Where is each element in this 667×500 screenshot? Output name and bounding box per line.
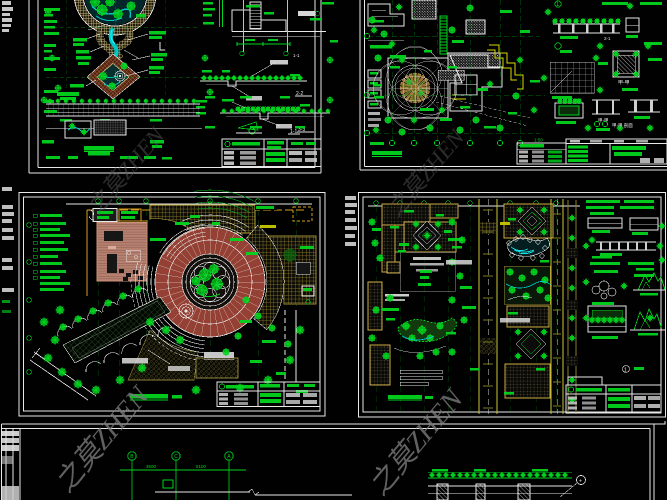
svg-text:甲-甲 剖面: 甲-甲 剖面 (612, 122, 633, 129)
svg-text:C: C (174, 454, 178, 460)
svg-text:1: 1 (624, 368, 627, 374)
svg-text:1:50: 1:50 (534, 138, 543, 143)
svg-text:+: + (579, 479, 582, 485)
svg-text:甲-甲: 甲-甲 (618, 80, 630, 86)
svg-text:1-1: 1-1 (293, 53, 300, 58)
svg-text:3600: 3600 (146, 464, 157, 469)
svg-text:2-1: 2-1 (604, 36, 611, 41)
svg-text:5100: 5100 (196, 464, 207, 469)
